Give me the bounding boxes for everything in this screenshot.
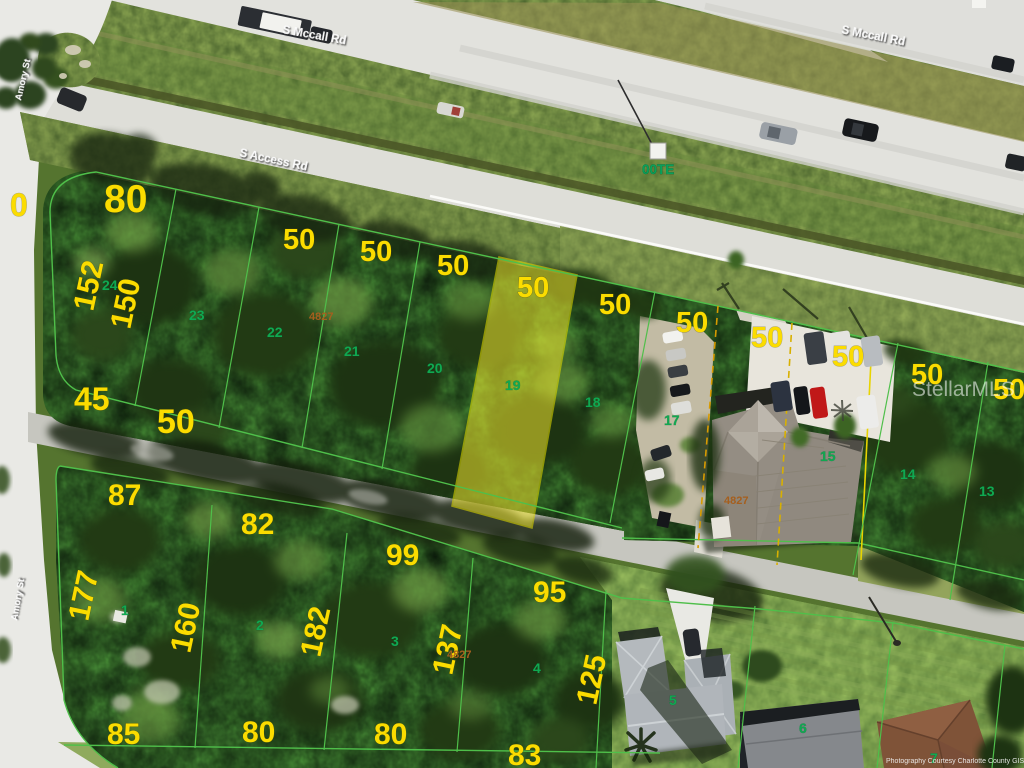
svg-text:50: 50 <box>360 236 392 268</box>
svg-text:45: 45 <box>74 381 110 417</box>
svg-text:50: 50 <box>283 224 315 256</box>
svg-text:0: 0 <box>10 187 28 223</box>
svg-text:99: 99 <box>386 539 419 572</box>
svg-text:50: 50 <box>832 341 864 373</box>
svg-text:24: 24 <box>102 277 118 293</box>
svg-text:21: 21 <box>344 343 360 359</box>
svg-text:20: 20 <box>427 360 443 376</box>
svg-text:95: 95 <box>533 576 566 609</box>
svg-text:87: 87 <box>108 479 141 512</box>
svg-text:19: 19 <box>505 377 521 393</box>
svg-text:4827: 4827 <box>309 311 333 323</box>
svg-text:83: 83 <box>508 739 541 768</box>
svg-text:50: 50 <box>599 289 631 321</box>
svg-text:4827: 4827 <box>724 495 748 507</box>
svg-text:50: 50 <box>437 250 469 282</box>
svg-text:Photography Courtesy Charlotte: Photography Courtesy Charlotte County GI… <box>886 758 1024 765</box>
svg-text:80: 80 <box>242 716 275 749</box>
svg-text:00TE: 00TE <box>642 162 674 177</box>
svg-text:50: 50 <box>676 307 708 339</box>
svg-text:18: 18 <box>585 394 601 410</box>
svg-text:22: 22 <box>267 324 283 340</box>
svg-text:80: 80 <box>374 718 407 751</box>
svg-text:13: 13 <box>979 483 995 499</box>
svg-text:50: 50 <box>517 272 549 304</box>
svg-text:17: 17 <box>664 412 680 428</box>
svg-text:80: 80 <box>104 178 147 221</box>
svg-text:5: 5 <box>669 692 677 708</box>
svg-text:50: 50 <box>157 403 195 441</box>
svg-text:2: 2 <box>256 617 264 633</box>
svg-text:82: 82 <box>241 508 274 541</box>
svg-text:4827: 4827 <box>447 649 471 661</box>
svg-text:50: 50 <box>751 322 783 354</box>
svg-text:StellarMLS: StellarMLS <box>912 378 1015 401</box>
svg-text:23: 23 <box>189 307 205 323</box>
svg-text:85: 85 <box>107 718 140 751</box>
svg-text:14: 14 <box>900 466 916 482</box>
svg-text:1: 1 <box>121 602 129 618</box>
svg-text:3: 3 <box>391 633 399 649</box>
svg-text:4: 4 <box>533 660 541 676</box>
svg-text:6: 6 <box>799 720 807 736</box>
svg-text:15: 15 <box>820 448 836 464</box>
